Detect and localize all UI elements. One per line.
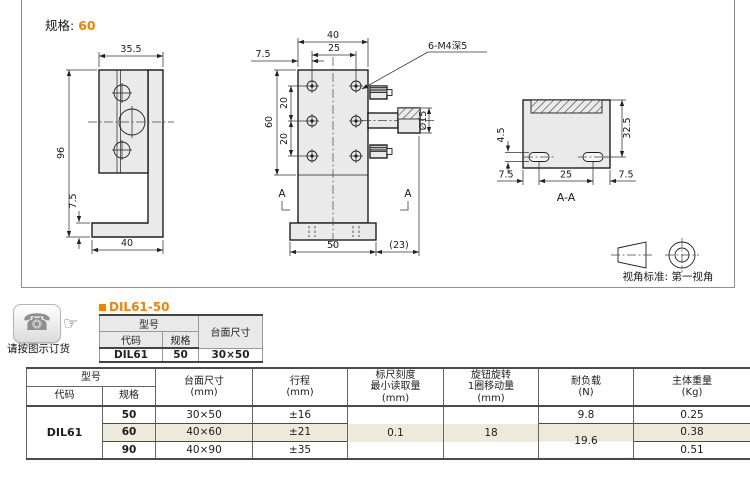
spec-header-spec: 规格 — [103, 386, 156, 406]
stroke-60: ±21 — [253, 423, 348, 441]
projection-note: 视角标准: 第一视角 — [623, 270, 714, 283]
section-view-title: A-A — [557, 191, 576, 204]
dim-edge-right: 7.5 — [618, 170, 633, 181]
spec-header-model: 型号 — [27, 368, 156, 386]
projection-symbols: 视角标准: 第一视角 — [611, 238, 713, 283]
dim-front-height: 60 — [264, 116, 275, 128]
spec-code: DIL61 — [27, 406, 103, 459]
dim-front-base: 50 — [327, 240, 339, 251]
side-view-drawing: 35.5 96 7.5 40 — [56, 44, 174, 254]
scale-min: 0.1 — [348, 406, 444, 459]
spec-header-load: 耐负载(N) — [539, 368, 634, 406]
dim-side-foot: 7.5 — [68, 193, 79, 208]
spec-header-stroke: 行程(mm) — [253, 368, 348, 406]
spec-header-weight: 主体重量(Kg) — [634, 368, 750, 406]
dim-side-base: 40 — [121, 238, 133, 249]
knob — [398, 108, 420, 133]
spec-header-knob: 旋钮旋转1圈移动量(mm) — [444, 368, 539, 406]
spec-90: 90 — [103, 441, 156, 459]
size-90: 40×90 — [156, 441, 253, 459]
spec-table: 型号 台面尺寸(mm) 行程(mm) 标尺刻度最小读取量(mm) 旋钮旋转1圈移… — [26, 367, 750, 460]
part-table-header-spec: 规格 — [163, 332, 199, 349]
spec-50: 50 — [103, 406, 156, 423]
stroke-90: ±35 — [253, 441, 348, 459]
dim-knob-overhang: (23) — [389, 240, 409, 251]
weight-60: 0.38 — [634, 423, 750, 441]
section-mark-left: A — [278, 188, 286, 200]
dim-pitch-top: 20 — [279, 97, 290, 109]
spec-row-50: DIL61 50 30×50 ±16 0.1 18 9.8 0.25 — [27, 406, 750, 423]
knob-move: 18 — [444, 406, 539, 459]
clamp-top — [370, 86, 392, 99]
load-50: 9.8 — [539, 406, 634, 423]
part-number: DIL61-50 — [109, 300, 169, 314]
dim-pitch-bottom: 20 — [279, 133, 290, 145]
dim-front-hole-offset: 7.5 — [255, 49, 270, 60]
part-table-spec: 50 — [163, 348, 199, 362]
spec-header-code: 代码 — [27, 386, 103, 406]
part-number-title: DIL61-50 — [99, 300, 169, 314]
part-table-size: 30×50 — [199, 348, 263, 362]
spec-header-scale: 标尺刻度最小读取量(mm) — [348, 368, 444, 406]
stroke-50: ±16 — [253, 406, 348, 423]
first-angle-circles-icon — [665, 238, 699, 272]
phone-icon: ☎ — [23, 312, 52, 335]
part-table-code: DIL61 — [100, 348, 163, 362]
front-view-drawing: 40 25 7.5 6-M4深5 60 20 20 A A Ø15 — [251, 30, 487, 256]
part-table-header-size: 台面尺寸 — [199, 315, 263, 348]
dim-knob-dia: Ø15 — [418, 111, 429, 131]
size-60: 40×60 — [156, 423, 253, 441]
order-phone-button: ☎ — [13, 304, 61, 343]
weight-50: 0.25 — [634, 406, 750, 423]
dim-side-width: 35.5 — [120, 44, 141, 55]
order-note-text: 请按图示订货 — [7, 341, 70, 356]
thread-note: 6-M4深5 — [428, 41, 467, 52]
weight-90: 0.51 — [634, 441, 750, 459]
section-view-drawing: 4.5 32.5 7.5 25 7.5 A-A — [496, 100, 636, 204]
title-bullet-icon — [99, 304, 106, 311]
dovetail-hatch — [531, 100, 602, 113]
dim-side-height: 96 — [56, 147, 67, 159]
dim-slot-height: 4.5 — [496, 127, 507, 142]
spec-header-size: 台面尺寸(mm) — [156, 368, 253, 406]
part-table-header-code: 代码 — [100, 332, 163, 349]
dim-front-hole-span: 25 — [328, 43, 340, 54]
dim-edge-left: 7.5 — [498, 170, 513, 181]
technical-drawing: 35.5 96 7.5 40 — [0, 0, 750, 287]
dim-front-width: 40 — [327, 30, 339, 41]
clamp-bottom — [370, 145, 392, 158]
dim-depth: 32.5 — [622, 117, 633, 138]
load-60-90: 19.6 — [539, 423, 634, 459]
size-50: 30×50 — [156, 406, 253, 423]
spec-60: 60 — [103, 423, 156, 441]
section-mark-right: A — [404, 188, 412, 200]
pointing-hand-icon: ☞ — [63, 314, 78, 334]
dim-slot-span: 25 — [560, 170, 572, 181]
part-number-table: 型号 台面尺寸 代码 规格 DIL61 50 30×50 — [99, 314, 263, 363]
catalog-page: { "colors": {"accent": "#F08300", "row_h… — [0, 0, 750, 480]
part-table-header-model: 型号 — [100, 315, 199, 332]
